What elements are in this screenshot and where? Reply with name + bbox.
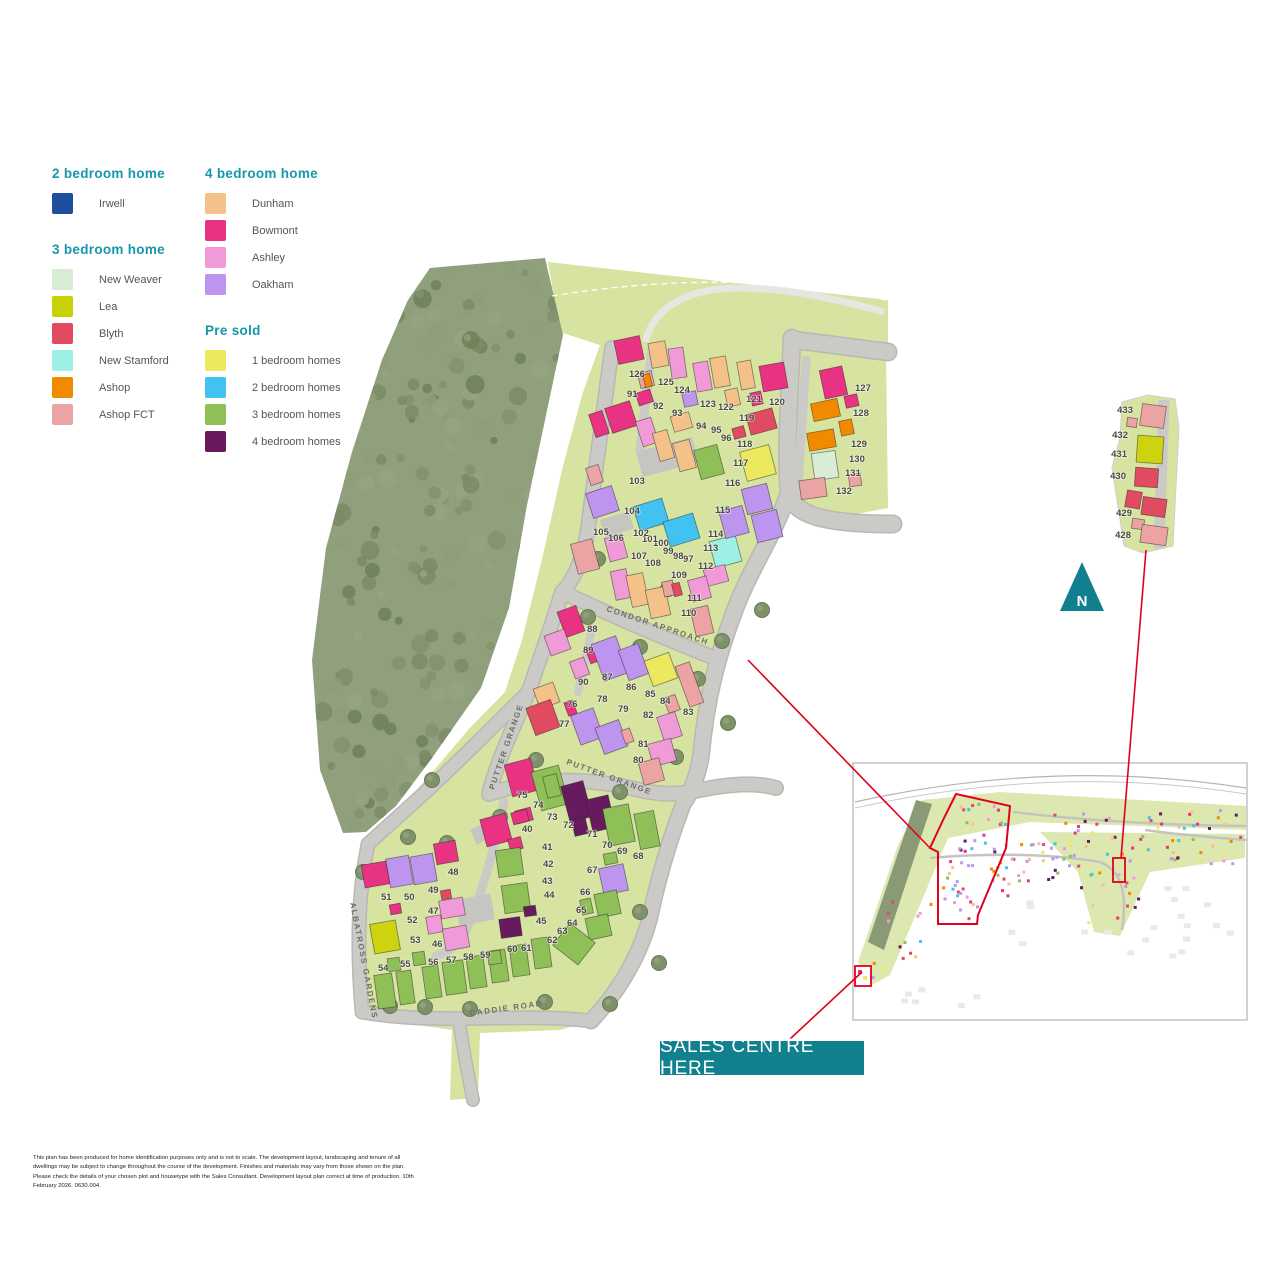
legend-label: 4 bedroom homes	[252, 436, 341, 448]
plot-number: 116	[725, 478, 740, 489]
tree-texture	[453, 632, 466, 645]
tree-texture	[427, 309, 440, 322]
tree-texture	[490, 437, 497, 444]
plot-number: 113	[703, 543, 718, 554]
legend-label: Ashop	[99, 382, 130, 394]
tree-texture	[338, 469, 355, 486]
plot-number: 85	[645, 689, 656, 700]
plot-number: 123	[700, 399, 716, 410]
tree-texture	[432, 688, 446, 702]
connector-line	[748, 660, 930, 848]
house	[361, 861, 390, 888]
tree-texture	[509, 387, 527, 405]
overview-house-dot	[997, 809, 1000, 812]
overview-house-dot	[1042, 843, 1045, 846]
tree-highlight	[635, 907, 641, 913]
overview-ghost-building	[1171, 897, 1178, 902]
tree-highlight	[654, 958, 660, 964]
overview-house-dot	[946, 877, 949, 880]
plot-number: 84	[660, 696, 671, 707]
overview-house-dot	[1231, 862, 1234, 865]
tree-texture	[410, 315, 424, 329]
legend-item: New Stamford	[52, 350, 205, 371]
plot-number: 75	[517, 790, 528, 801]
satellite-house	[1140, 403, 1167, 428]
overview-house-dot	[1208, 827, 1211, 830]
plot-number: 50	[404, 892, 415, 903]
overview-house-dot	[993, 848, 996, 851]
plot-number: 130	[849, 454, 865, 465]
overview-house-dot	[1102, 870, 1105, 873]
tree-texture	[306, 531, 319, 544]
tree-texture	[536, 481, 553, 498]
tree-texture	[412, 653, 428, 669]
legend-section-title: 3 bedroom home	[52, 242, 205, 257]
overview-house-dot	[1000, 822, 1003, 825]
overview-ghost-building	[1127, 950, 1134, 955]
overview-house-dot	[1078, 872, 1081, 875]
overview-house-dot	[1055, 856, 1058, 859]
plot-number: 44	[544, 890, 555, 901]
plot-number: 56	[428, 957, 439, 968]
satellite-house	[1140, 524, 1168, 545]
overview-house-dot	[1116, 917, 1119, 920]
plot-number: 63	[557, 926, 568, 937]
overview-house-dot	[1051, 876, 1054, 879]
overview-house-dot	[1132, 877, 1135, 880]
overview-house-dot	[1210, 862, 1213, 865]
overview-house-dot	[1219, 809, 1222, 812]
tree-texture	[492, 344, 501, 353]
overview-house-dot	[964, 840, 967, 843]
overview-house-dot	[1005, 866, 1008, 869]
plot-number: 115	[715, 505, 731, 516]
tree-texture	[467, 630, 476, 639]
plot-number: 55	[400, 959, 411, 970]
legend-label: New Weaver	[99, 274, 162, 286]
tree-texture	[429, 654, 445, 670]
legend-swatch	[205, 431, 226, 452]
tree-texture	[485, 562, 493, 570]
tree-texture	[370, 531, 378, 539]
tree-texture	[429, 256, 438, 265]
plot-number: 93	[672, 408, 683, 419]
plot-number: 51	[381, 892, 392, 903]
house	[412, 951, 426, 966]
legend-item: 3 bedroom homes	[205, 404, 405, 425]
plot-number: 110	[681, 608, 696, 619]
tree-texture	[358, 476, 373, 491]
tree-texture	[305, 582, 321, 598]
overview-sales-dot	[863, 976, 867, 980]
overview-house-dot	[1077, 829, 1080, 832]
overview-house-dot	[1126, 905, 1129, 908]
legend-section-title: Pre sold	[205, 323, 405, 338]
plot-number: 97	[683, 554, 694, 565]
plot-number: 49	[428, 885, 439, 896]
tree-texture	[445, 418, 462, 435]
house	[495, 847, 524, 877]
overview-house-dot	[1001, 889, 1004, 892]
tree-texture	[425, 724, 439, 738]
overview-house-dot	[1124, 885, 1127, 888]
tree-texture	[447, 580, 455, 588]
tree-texture	[460, 499, 473, 512]
house	[387, 957, 401, 972]
plot-number: 46	[432, 939, 443, 950]
tree-texture	[419, 545, 427, 553]
tree-texture	[348, 710, 362, 724]
overview-house-dot	[977, 803, 980, 806]
overview-house-dot	[976, 905, 979, 908]
overview-house-dot	[1141, 835, 1144, 838]
overview-house-dot	[1098, 871, 1101, 874]
legend-label: Blyth	[99, 328, 123, 340]
plot-number: 126	[629, 369, 645, 380]
plot-number: 61	[521, 943, 532, 954]
tree-texture	[349, 820, 361, 832]
tree-texture	[366, 761, 379, 774]
tree-texture	[370, 689, 378, 697]
overview-house-dot	[1017, 874, 1020, 877]
tree-texture	[432, 399, 450, 417]
legend-swatch	[205, 274, 226, 295]
overview-house-dot	[973, 839, 976, 842]
road	[700, 784, 776, 790]
tree-texture	[422, 339, 435, 352]
overview-house-dot	[948, 872, 951, 875]
tree-texture	[473, 250, 486, 263]
overview-house-dot	[902, 957, 905, 960]
overview-house-dot	[1090, 873, 1093, 876]
overview-house-dot	[1159, 812, 1162, 815]
overview-house-dot	[1192, 824, 1195, 827]
plot-number: 129	[851, 439, 867, 450]
tree-texture	[353, 631, 363, 641]
tree-texture	[522, 269, 529, 276]
overview-house-dot	[1111, 837, 1114, 840]
overview-ghost-building	[1164, 886, 1171, 891]
legend-swatch	[52, 193, 73, 214]
plot-number: 86	[626, 682, 637, 693]
overview-house-dot	[982, 834, 985, 837]
plot-number: 90	[578, 677, 589, 688]
overview-house-dot	[970, 847, 973, 850]
overview-ghost-building	[1184, 923, 1191, 928]
tree-highlight	[583, 612, 589, 618]
tree-texture	[488, 531, 506, 549]
tree-highlight	[615, 787, 621, 793]
plot-number: 112	[698, 561, 713, 572]
legend-swatch	[205, 193, 226, 214]
overview-house-dot	[1148, 816, 1151, 819]
house	[386, 855, 414, 888]
overview-house-dot	[1069, 845, 1072, 848]
overview-house-dot	[1085, 845, 1088, 848]
tree-texture	[442, 739, 452, 749]
tree-texture	[475, 252, 484, 261]
overview-house-dot	[1050, 847, 1053, 850]
overview-house-dot	[1047, 878, 1050, 881]
plot-number: 66	[580, 887, 591, 898]
tree-highlight	[403, 832, 409, 838]
overview-house-dot	[1170, 857, 1173, 860]
plot-number: 108	[645, 558, 661, 569]
satellite-house	[1126, 417, 1137, 427]
house	[440, 889, 451, 900]
legend-label: Ashley	[252, 252, 285, 264]
tree-texture	[392, 758, 408, 774]
overview-house-dot	[1102, 883, 1105, 886]
plot-number: 98	[673, 551, 684, 562]
tree-texture	[515, 353, 526, 364]
tree-texture	[462, 331, 480, 349]
tree-texture	[546, 437, 558, 449]
house	[499, 917, 522, 939]
plot-number: 74	[533, 800, 544, 811]
overview-house-dot	[951, 888, 954, 891]
plot-number: 109	[671, 570, 687, 581]
tree-texture	[473, 256, 480, 263]
satellite-plot-number: 428	[1115, 530, 1131, 541]
tree-texture	[523, 580, 534, 591]
tree-texture	[425, 629, 438, 642]
tree-texture	[485, 259, 494, 268]
overview-house-dot	[1188, 813, 1191, 816]
overview-house-dot	[1006, 894, 1009, 897]
plot-number: 41	[542, 842, 553, 853]
legend-label: New Stamford	[99, 355, 169, 367]
tree-highlight	[757, 605, 763, 611]
overview-house-dot	[1050, 820, 1053, 823]
tree-texture	[423, 558, 438, 573]
overview-house-dot	[919, 912, 922, 915]
tree-texture	[486, 642, 494, 650]
overview-house-dot	[1142, 848, 1145, 851]
tree-texture	[487, 621, 497, 631]
overview-house-dot	[919, 940, 922, 943]
tree-texture	[487, 310, 503, 326]
tree-highlight	[605, 999, 611, 1005]
tree-texture	[445, 442, 454, 451]
satellite-house	[1136, 435, 1164, 464]
overview-house-dot	[1077, 825, 1080, 828]
overview-house-dot	[1004, 823, 1007, 826]
site-plan-page: 4041424344454647484950515253545556575859…	[0, 0, 1280, 1281]
tree-texture	[416, 290, 424, 298]
legend-swatch	[205, 350, 226, 371]
tree-texture	[541, 422, 559, 440]
tree-texture	[377, 590, 386, 599]
tree-texture	[330, 510, 346, 526]
tree-texture	[428, 486, 441, 499]
overview-house-dot	[1018, 879, 1021, 882]
overview-house-dot	[1149, 819, 1152, 822]
tree-texture	[473, 418, 490, 435]
overview-house-dot	[971, 864, 974, 867]
legend-label: Oakham	[252, 279, 294, 291]
tree-texture	[469, 535, 487, 553]
tree-texture	[408, 561, 419, 572]
plot-number: 45	[536, 916, 547, 927]
legend-item: Dunham	[205, 193, 405, 214]
tree-texture	[316, 487, 331, 502]
tree-texture	[527, 275, 542, 290]
plot-number: 42	[543, 859, 554, 870]
overview-house-dot	[1129, 859, 1132, 862]
tree-texture	[431, 280, 441, 290]
plot-number: 102	[633, 528, 649, 539]
overview-house-dot	[1211, 845, 1214, 848]
tree-texture	[462, 476, 479, 493]
overview-house-dot	[1053, 814, 1056, 817]
overview-house-dot	[887, 920, 890, 923]
overview-ghost-building	[1150, 925, 1157, 930]
legend-label: 2 bedroom homes	[252, 382, 341, 394]
plot-number: 40	[522, 824, 533, 835]
legend-item: 2 bedroom homes	[205, 377, 405, 398]
satellite-plot-number: 432	[1112, 430, 1128, 441]
tree-texture	[438, 728, 455, 745]
tree-texture	[378, 608, 392, 622]
satellite-plot-number: 431	[1111, 449, 1128, 460]
overview-house-dot	[1022, 871, 1025, 874]
overview-house-dot	[930, 903, 933, 906]
legend-item: 1 bedroom homes	[205, 350, 405, 371]
overview-house-dot	[1183, 827, 1186, 830]
overview-house-dot	[1084, 820, 1087, 823]
tree-texture	[372, 714, 389, 731]
overview-house-dot	[1106, 853, 1109, 856]
overview-ghost-building	[974, 994, 981, 999]
house	[585, 914, 612, 940]
legend-swatch	[52, 296, 73, 317]
overview-house-dot	[956, 894, 959, 897]
plot-number: 92	[653, 401, 664, 412]
plot-number: 78	[597, 694, 608, 705]
overview-ghost-building	[1008, 930, 1015, 935]
overview-house-dot	[1147, 848, 1150, 851]
overview-ghost-building	[1169, 953, 1176, 958]
overview-house-dot	[1190, 810, 1193, 813]
plot-number: 80	[633, 755, 644, 766]
tree-texture	[362, 576, 376, 590]
plot-number: 91	[627, 389, 638, 400]
overview-ghost-building	[958, 1003, 965, 1008]
tree-highlight	[717, 636, 723, 642]
overview-house-dot	[1087, 921, 1090, 924]
tree-texture	[319, 463, 332, 476]
house	[426, 915, 444, 934]
plot-number: 87	[602, 672, 613, 683]
overview-house-dot	[1020, 843, 1023, 846]
house	[523, 905, 536, 917]
overview-ghost-building	[912, 999, 919, 1004]
tree-texture	[339, 668, 353, 682]
legend-item: Bowmont	[205, 220, 405, 241]
overview-house-dot	[964, 850, 967, 853]
overview-house-dot	[1032, 843, 1035, 846]
tree-texture	[419, 750, 431, 762]
overview-ghost-building	[1105, 930, 1112, 935]
overview-house-dot	[971, 822, 974, 825]
overview-ghost-building	[1182, 886, 1189, 891]
overview-house-dot	[1074, 832, 1077, 835]
tree-texture	[466, 375, 485, 394]
plot-number: 118	[737, 439, 752, 450]
plot-number: 54	[378, 963, 389, 974]
overview-house-dot	[949, 860, 952, 863]
overview-house-dot	[942, 886, 945, 889]
overview-house-dot	[951, 866, 954, 869]
overview-house-dot	[1160, 823, 1163, 826]
overview-house-dot	[880, 968, 883, 971]
overview-house-dot	[967, 864, 970, 867]
plot-number: 43	[542, 876, 553, 887]
plot-number: 79	[618, 704, 629, 715]
house	[410, 853, 438, 885]
tree-texture	[454, 659, 468, 673]
plot-number: 114	[708, 529, 724, 540]
plot-number: 67	[587, 865, 598, 876]
tree-texture	[552, 416, 560, 424]
legend-label: 3 bedroom homes	[252, 409, 341, 421]
tree-texture	[426, 670, 436, 680]
overview-house-dot	[1053, 842, 1056, 845]
overview-house-dot	[1118, 873, 1121, 876]
plot-number: 59	[480, 950, 491, 961]
overview-house-dot	[969, 900, 972, 903]
overview-house-dot	[899, 945, 902, 948]
house	[442, 925, 469, 951]
legend-item: Ashop FCT	[52, 404, 205, 425]
legend-item: 4 bedroom homes	[205, 431, 405, 452]
overview-house-dot	[1056, 872, 1059, 875]
tree-texture	[410, 255, 424, 269]
legend-label: 1 bedroom homes	[252, 355, 341, 367]
overview-house-dot	[1139, 838, 1142, 841]
plot-number: 72	[563, 820, 574, 831]
house	[439, 897, 466, 919]
tree-texture	[439, 381, 447, 389]
tree-texture	[504, 263, 517, 276]
overview-house-dot	[954, 884, 957, 887]
overview-ghost-building	[1179, 949, 1186, 954]
overview-ghost-building	[1142, 937, 1149, 942]
plot-number: 65	[576, 905, 587, 916]
house	[811, 450, 839, 480]
overview-house-dot	[1174, 858, 1177, 861]
plot-number: 70	[602, 840, 613, 851]
satellite-plot-number: 433	[1117, 405, 1133, 416]
plot-number: 60	[507, 944, 518, 955]
overview-house-dot	[1073, 854, 1076, 857]
tree-texture	[313, 702, 332, 721]
overview-house-dot	[1041, 851, 1044, 854]
overview-ghost-building	[1183, 936, 1190, 941]
overview-house-dot	[916, 915, 919, 918]
plot-number: 76	[567, 699, 578, 710]
legend-label: Dunham	[252, 198, 294, 210]
overview-house-dot	[960, 861, 963, 864]
tree-texture	[506, 330, 515, 339]
house	[389, 903, 402, 915]
overview-house-dot	[1064, 822, 1067, 825]
tree-texture	[361, 541, 380, 560]
overview-house-dot	[962, 808, 965, 811]
house	[844, 394, 859, 408]
overview-house-dot	[966, 895, 969, 898]
